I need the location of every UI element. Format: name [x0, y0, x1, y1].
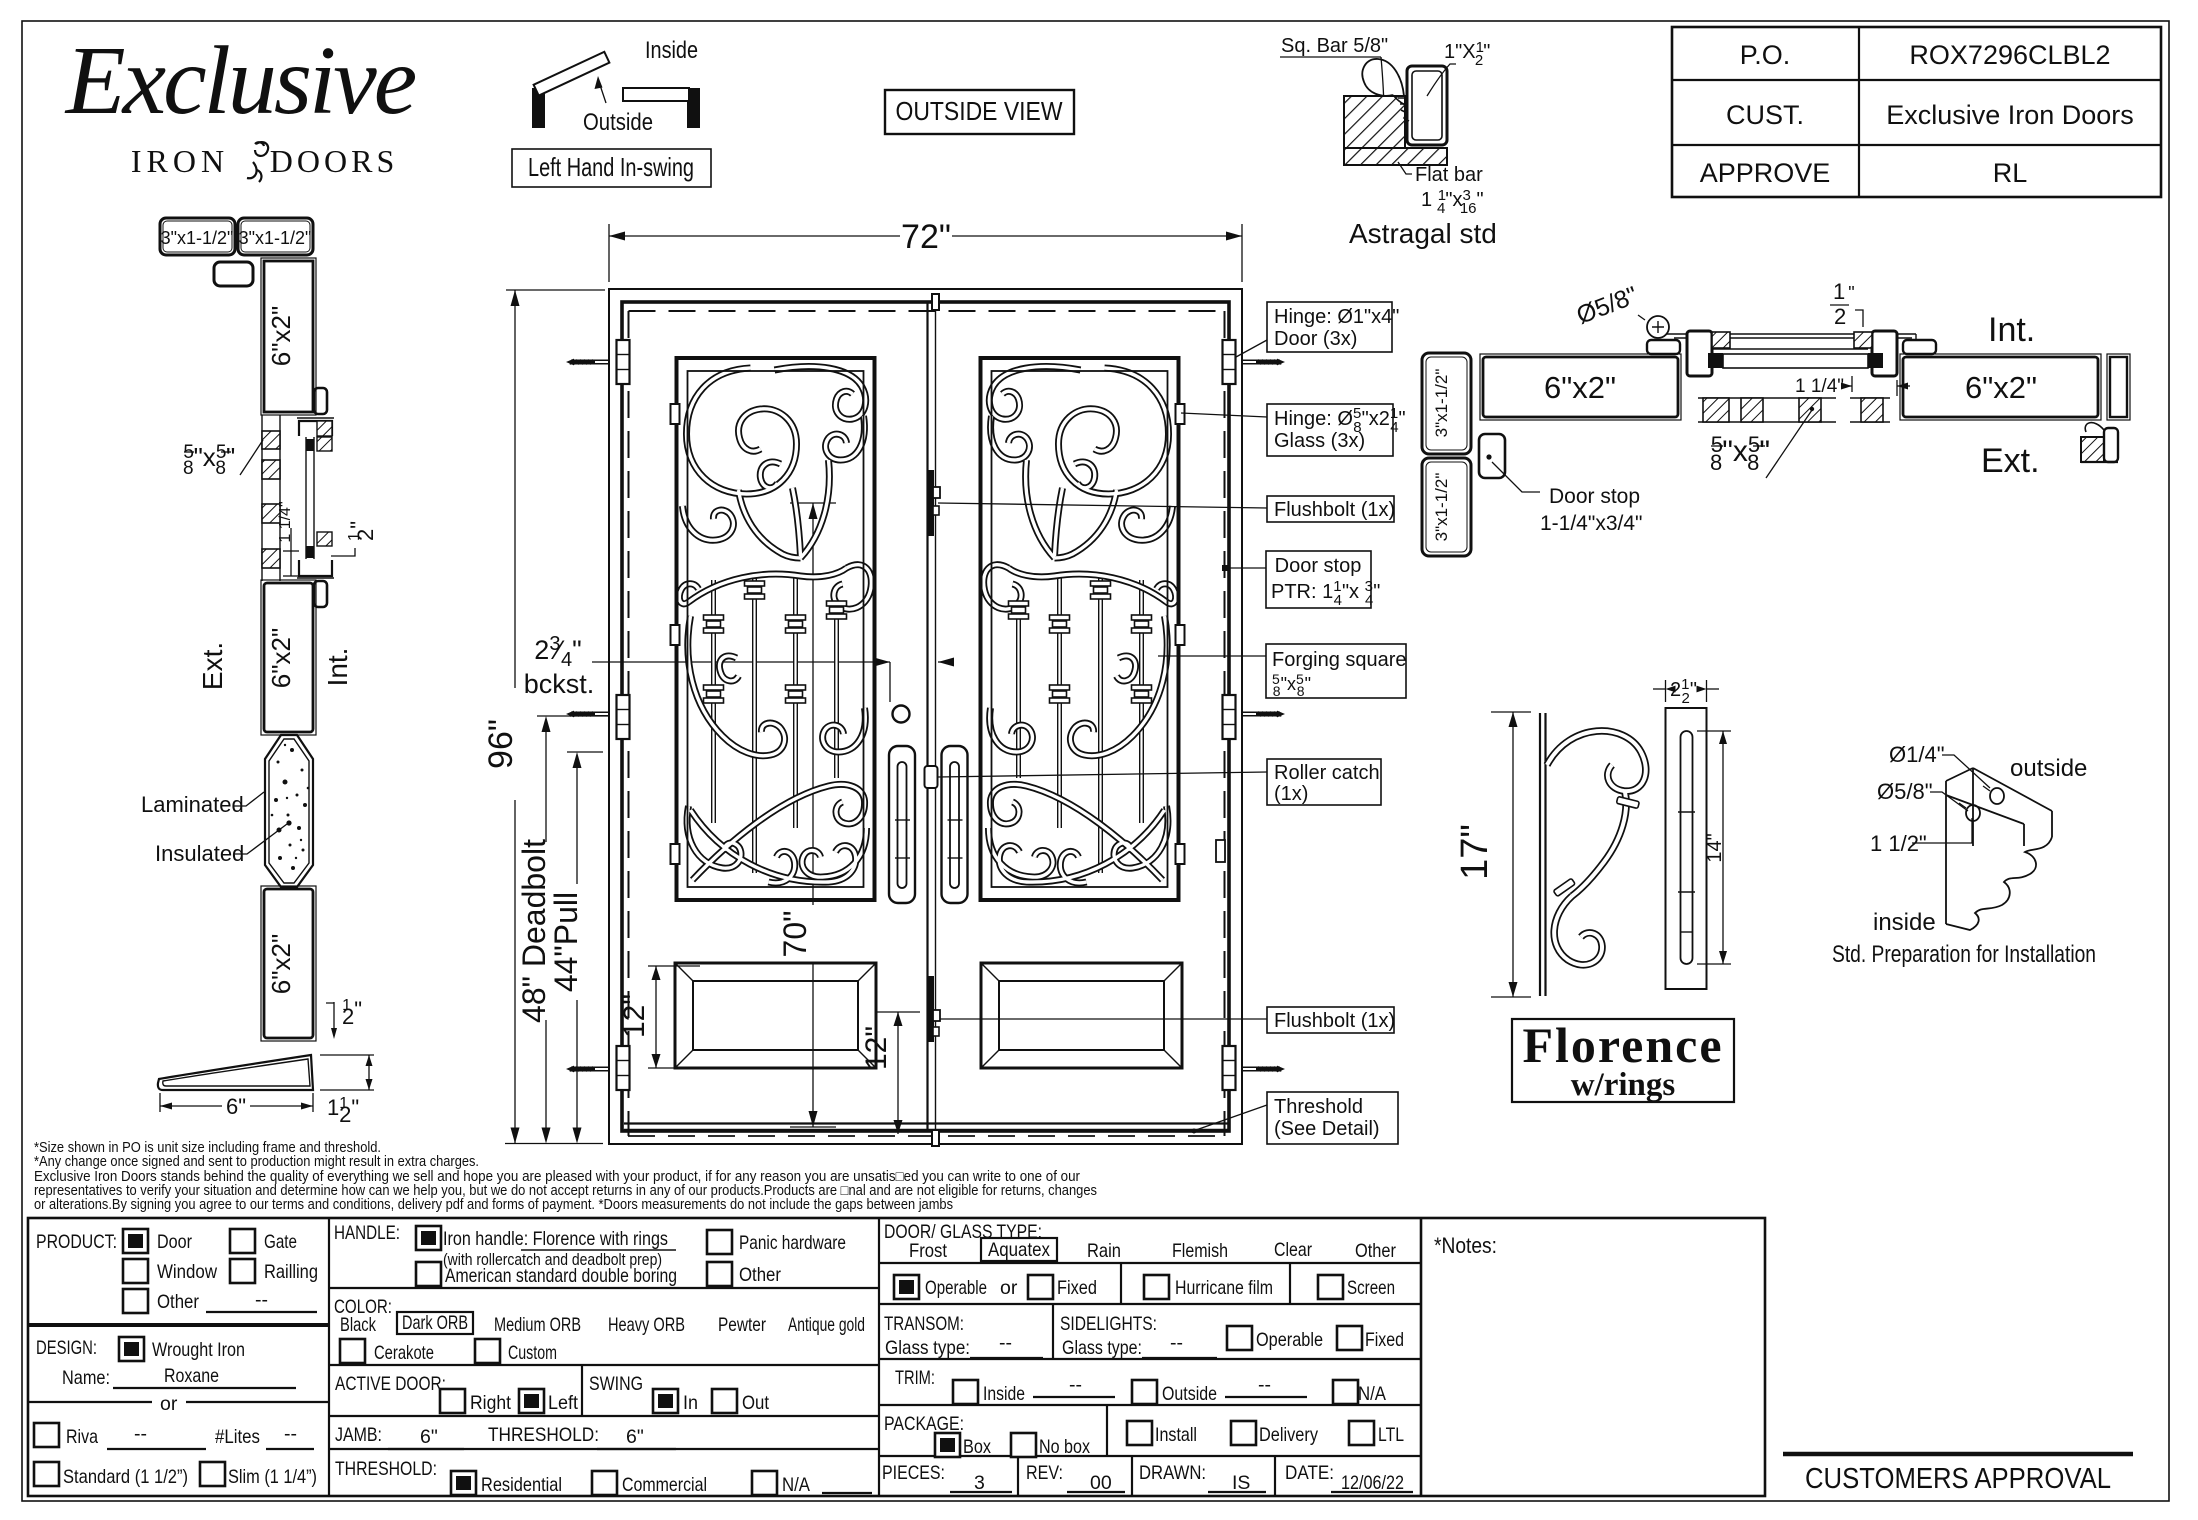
svg-text:Standard (1 1/2”): Standard (1 1/2”)	[63, 1466, 188, 1488]
svg-text:LTL: LTL	[1378, 1424, 1404, 1446]
svg-text:Panic hardware: Panic hardware	[739, 1232, 846, 1254]
svg-text:Wrought Iron: Wrought Iron	[152, 1339, 245, 1361]
svg-text:CUST.: CUST.	[1726, 100, 1804, 130]
svg-text:ROX7296CLBL2: ROX7296CLBL2	[1909, 40, 2110, 70]
svg-text:Std. Preparation for Installat: Std. Preparation for Installation	[1832, 941, 2096, 968]
svg-text:Door stop: Door stop	[1549, 485, 1640, 508]
svg-text:CUSTOMERS APPROVAL: CUSTOMERS APPROVAL	[1805, 1463, 2111, 1495]
svg-text:Flushbolt (1x): Flushbolt (1x)	[1274, 499, 1395, 521]
svg-text:Inside: Inside	[645, 37, 698, 64]
svg-text:Commercial: Commercial	[622, 1474, 707, 1496]
svg-text:(See Detail): (See Detail)	[1274, 1118, 1380, 1140]
svg-text:3: 3	[974, 1472, 985, 1494]
svg-text:American standard double borin: American standard double boring	[445, 1265, 677, 1287]
svg-text:OUTSIDE VIEW: OUTSIDE VIEW	[896, 96, 1063, 126]
svg-text:Black: Black	[340, 1314, 376, 1336]
svg-text:1": 1"	[1833, 279, 1855, 304]
svg-text:RL: RL	[1993, 158, 2028, 188]
svg-text:No box: No box	[1039, 1436, 1090, 1458]
svg-text:--: --	[1258, 1374, 1271, 1396]
svg-text:Pewter: Pewter	[718, 1314, 766, 1336]
svg-text:Roxane: Roxane	[164, 1365, 219, 1387]
svg-text:Frost: Frost	[909, 1240, 947, 1262]
svg-text:Exclusive: Exclusive	[64, 27, 416, 135]
svg-text:#Lites: #Lites	[215, 1426, 260, 1448]
svg-text:3"x1-1/2": 3"x1-1/2"	[239, 228, 312, 248]
svg-text:N/A: N/A	[1358, 1383, 1386, 1405]
svg-text:Custom: Custom	[508, 1342, 557, 1364]
svg-text:Other: Other	[157, 1291, 199, 1313]
svg-text:inside: inside	[1873, 909, 1936, 936]
svg-text:Sq. Bar 5/8": Sq. Bar 5/8"	[1281, 35, 1388, 57]
svg-text:outside: outside	[2010, 755, 2087, 782]
svg-text:6"x2": 6"x2"	[266, 306, 296, 366]
svg-text:Medium ORB: Medium ORB	[494, 1314, 581, 1336]
svg-text:Flemish: Flemish	[1172, 1240, 1228, 1262]
svg-text:12/06/22: 12/06/22	[1341, 1472, 1404, 1494]
svg-text:3"x1-1/2": 3"x1-1/2"	[161, 228, 234, 248]
svg-text:*Any change once signed and se: *Any change once signed and sent to prod…	[34, 1154, 479, 1170]
svg-text:DRAWN:: DRAWN:	[1139, 1462, 1206, 1484]
svg-text:Fixed: Fixed	[1365, 1329, 1404, 1351]
svg-text:IRON: IRON	[131, 143, 229, 179]
svg-text:Other: Other	[739, 1264, 781, 1286]
svg-text:Delivery: Delivery	[1259, 1424, 1318, 1446]
svg-text:00: 00	[1090, 1472, 1112, 1494]
svg-text:REV:: REV:	[1026, 1462, 1063, 1484]
svg-text:Florence: Florence	[1522, 1017, 1723, 1073]
svg-text:DATE:: DATE:	[1285, 1462, 1334, 1484]
svg-text:Glass type:: Glass type:	[885, 1337, 970, 1359]
svg-text:Int.: Int.	[1988, 311, 2035, 349]
svg-text:ACTIVE DOOR:: ACTIVE DOOR:	[335, 1373, 446, 1395]
svg-text:Left Hand In-swing: Left Hand In-swing	[528, 152, 694, 182]
svg-text:6"x2": 6"x2"	[1544, 370, 1616, 405]
svg-text:Right: Right	[470, 1392, 512, 1414]
svg-text:--: --	[1170, 1332, 1183, 1354]
svg-text:1-1/4"x3/4": 1-1/4"x3/4"	[1540, 512, 1642, 535]
svg-text:Railling: Railling	[264, 1261, 318, 1283]
svg-text:Iron handle: Florence with rin: Iron handle: Florence with rings	[443, 1228, 668, 1250]
svg-text:Hurricane film: Hurricane film	[1175, 1277, 1273, 1299]
svg-text:Operable: Operable	[1256, 1329, 1323, 1351]
svg-text:44"Pull: 44"Pull	[548, 892, 584, 992]
svg-text:Rain: Rain	[1087, 1240, 1121, 1262]
svg-text:Laminated: Laminated	[141, 792, 244, 817]
svg-text:Exclusive Iron Doors: Exclusive Iron Doors	[1886, 100, 2134, 130]
svg-text:*Notes:: *Notes:	[1434, 1233, 1497, 1258]
svg-text:Residential: Residential	[481, 1474, 562, 1496]
svg-text:IS: IS	[1232, 1472, 1250, 1494]
svg-text:Riva: Riva	[66, 1426, 98, 1448]
svg-text:--: --	[1069, 1374, 1082, 1396]
svg-text:w/rings: w/rings	[1571, 1067, 1676, 1103]
svg-text:PACKAGE:: PACKAGE:	[884, 1413, 964, 1435]
svg-text:2: 2	[1834, 304, 1846, 329]
svg-text:SIDELIGHTS:: SIDELIGHTS:	[1060, 1313, 1157, 1335]
svg-text:Outside: Outside	[583, 109, 653, 136]
svg-text:Outside: Outside	[1162, 1383, 1217, 1405]
svg-text:96": 96"	[482, 719, 520, 769]
svg-text:Window: Window	[157, 1261, 218, 1283]
svg-text:Door: Door	[157, 1231, 192, 1253]
svg-text:TRANSOM:: TRANSOM:	[884, 1313, 964, 1335]
svg-text:Other: Other	[1355, 1240, 1396, 1262]
svg-text:12": 12"	[618, 994, 651, 1038]
svg-text:or alterations.By signing you: or alterations.By signing you agree to o…	[34, 1197, 953, 1213]
svg-text:Ext.: Ext.	[1981, 442, 2040, 480]
svg-text:14": 14"	[1704, 833, 1726, 862]
svg-text:Fixed: Fixed	[1057, 1277, 1097, 1299]
svg-text:3"x1-1/2": 3"x1-1/2"	[1432, 369, 1451, 438]
svg-text:--: --	[999, 1332, 1012, 1354]
svg-text:Screen: Screen	[1347, 1277, 1395, 1299]
svg-text:17": 17"	[1454, 824, 1496, 880]
svg-text:Glass (3x): Glass (3x)	[1274, 430, 1365, 452]
svg-text:Operable: Operable	[925, 1277, 987, 1299]
svg-text:6": 6"	[626, 1426, 644, 1448]
svg-text:6": 6"	[226, 1094, 246, 1119]
svg-text:JAMB:: JAMB:	[335, 1424, 382, 1446]
svg-text:Roller catch: Roller catch	[1274, 762, 1380, 784]
svg-text:Glass type:: Glass type:	[1062, 1337, 1142, 1359]
svg-text:--: --	[255, 1289, 268, 1311]
svg-text:P.O.: P.O.	[1740, 40, 1791, 70]
svg-text:Ø5/8": Ø5/8"	[1877, 779, 1933, 804]
svg-text:Heavy ORB: Heavy ORB	[608, 1314, 685, 1336]
svg-text:Name:: Name:	[62, 1367, 110, 1389]
svg-text:Hinge: Ø1"x4": Hinge: Ø1"x4"	[1274, 306, 1399, 328]
svg-text:--: --	[284, 1423, 297, 1445]
svg-text:Astragal std: Astragal std	[1349, 218, 1497, 249]
svg-text:72": 72"	[901, 218, 951, 256]
svg-text:Threshold: Threshold	[1274, 1096, 1363, 1118]
svg-text:3"x1-1/2": 3"x1-1/2"	[1432, 473, 1451, 542]
svg-text:HANDLE:: HANDLE:	[334, 1222, 400, 1244]
svg-text:Door (3x): Door (3x)	[1274, 328, 1357, 350]
svg-text:Slim (1 1/4”): Slim (1 1/4”)	[228, 1466, 317, 1488]
svg-text:Insulated: Insulated	[155, 841, 244, 866]
svg-text:Gate: Gate	[264, 1231, 297, 1253]
svg-text:6"x2": 6"x2"	[1965, 370, 2037, 405]
svg-text:APPROVE: APPROVE	[1700, 158, 1831, 188]
svg-text:TRIM:: TRIM:	[895, 1367, 935, 1389]
svg-text:Int.: Int.	[322, 648, 353, 687]
svg-text:Flushbolt (1x): Flushbolt (1x)	[1274, 1010, 1395, 1032]
svg-text:6"x2": 6"x2"	[266, 934, 296, 994]
svg-text:Dark ORB: Dark ORB	[402, 1312, 468, 1334]
svg-text:70": 70"	[777, 911, 813, 958]
svg-text:Ø1/4": Ø1/4"	[1889, 742, 1945, 767]
svg-text:Antique gold: Antique gold	[788, 1314, 865, 1336]
svg-text:bckst.: bckst.	[524, 669, 595, 699]
svg-text:Left: Left	[548, 1392, 579, 1414]
svg-text:THRESHOLD:: THRESHOLD:	[488, 1424, 599, 1446]
svg-text:Box: Box	[963, 1436, 991, 1458]
svg-text:6"x2": 6"x2"	[266, 628, 296, 688]
svg-text:PRODUCT:: PRODUCT:	[36, 1231, 117, 1253]
svg-text:1 1/4": 1 1/4"	[1795, 376, 1844, 397]
svg-text:(1x): (1x)	[1274, 783, 1308, 805]
svg-text:Inside: Inside	[983, 1383, 1025, 1405]
svg-text:--: --	[134, 1423, 147, 1445]
svg-text:Forging square: Forging square	[1272, 649, 1407, 671]
svg-text:THRESHOLD:: THRESHOLD:	[335, 1458, 437, 1480]
svg-text:Cerakote: Cerakote	[374, 1342, 434, 1364]
svg-text:SWING: SWING	[589, 1373, 643, 1395]
svg-text:48" Deadbolt: 48" Deadbolt	[516, 839, 552, 1023]
svg-text:6": 6"	[420, 1426, 438, 1448]
svg-text:Door stop: Door stop	[1275, 555, 1362, 577]
svg-text:Ext.: Ext.	[197, 642, 228, 690]
svg-text:Flat bar: Flat bar	[1415, 164, 1483, 186]
svg-text:Install: Install	[1155, 1424, 1197, 1446]
svg-text:N/A: N/A	[782, 1474, 810, 1496]
svg-text:Clear: Clear	[1274, 1239, 1312, 1261]
svg-text:or: or	[160, 1393, 178, 1415]
svg-text:DOORS: DOORS	[270, 143, 398, 179]
svg-text:Aquatex: Aquatex	[988, 1239, 1050, 1261]
svg-text:PIECES:: PIECES:	[882, 1462, 945, 1484]
svg-text:In: In	[683, 1392, 698, 1414]
svg-text:DESIGN:: DESIGN:	[36, 1337, 97, 1359]
svg-text:Out: Out	[742, 1392, 769, 1414]
svg-text:or: or	[1000, 1277, 1018, 1299]
